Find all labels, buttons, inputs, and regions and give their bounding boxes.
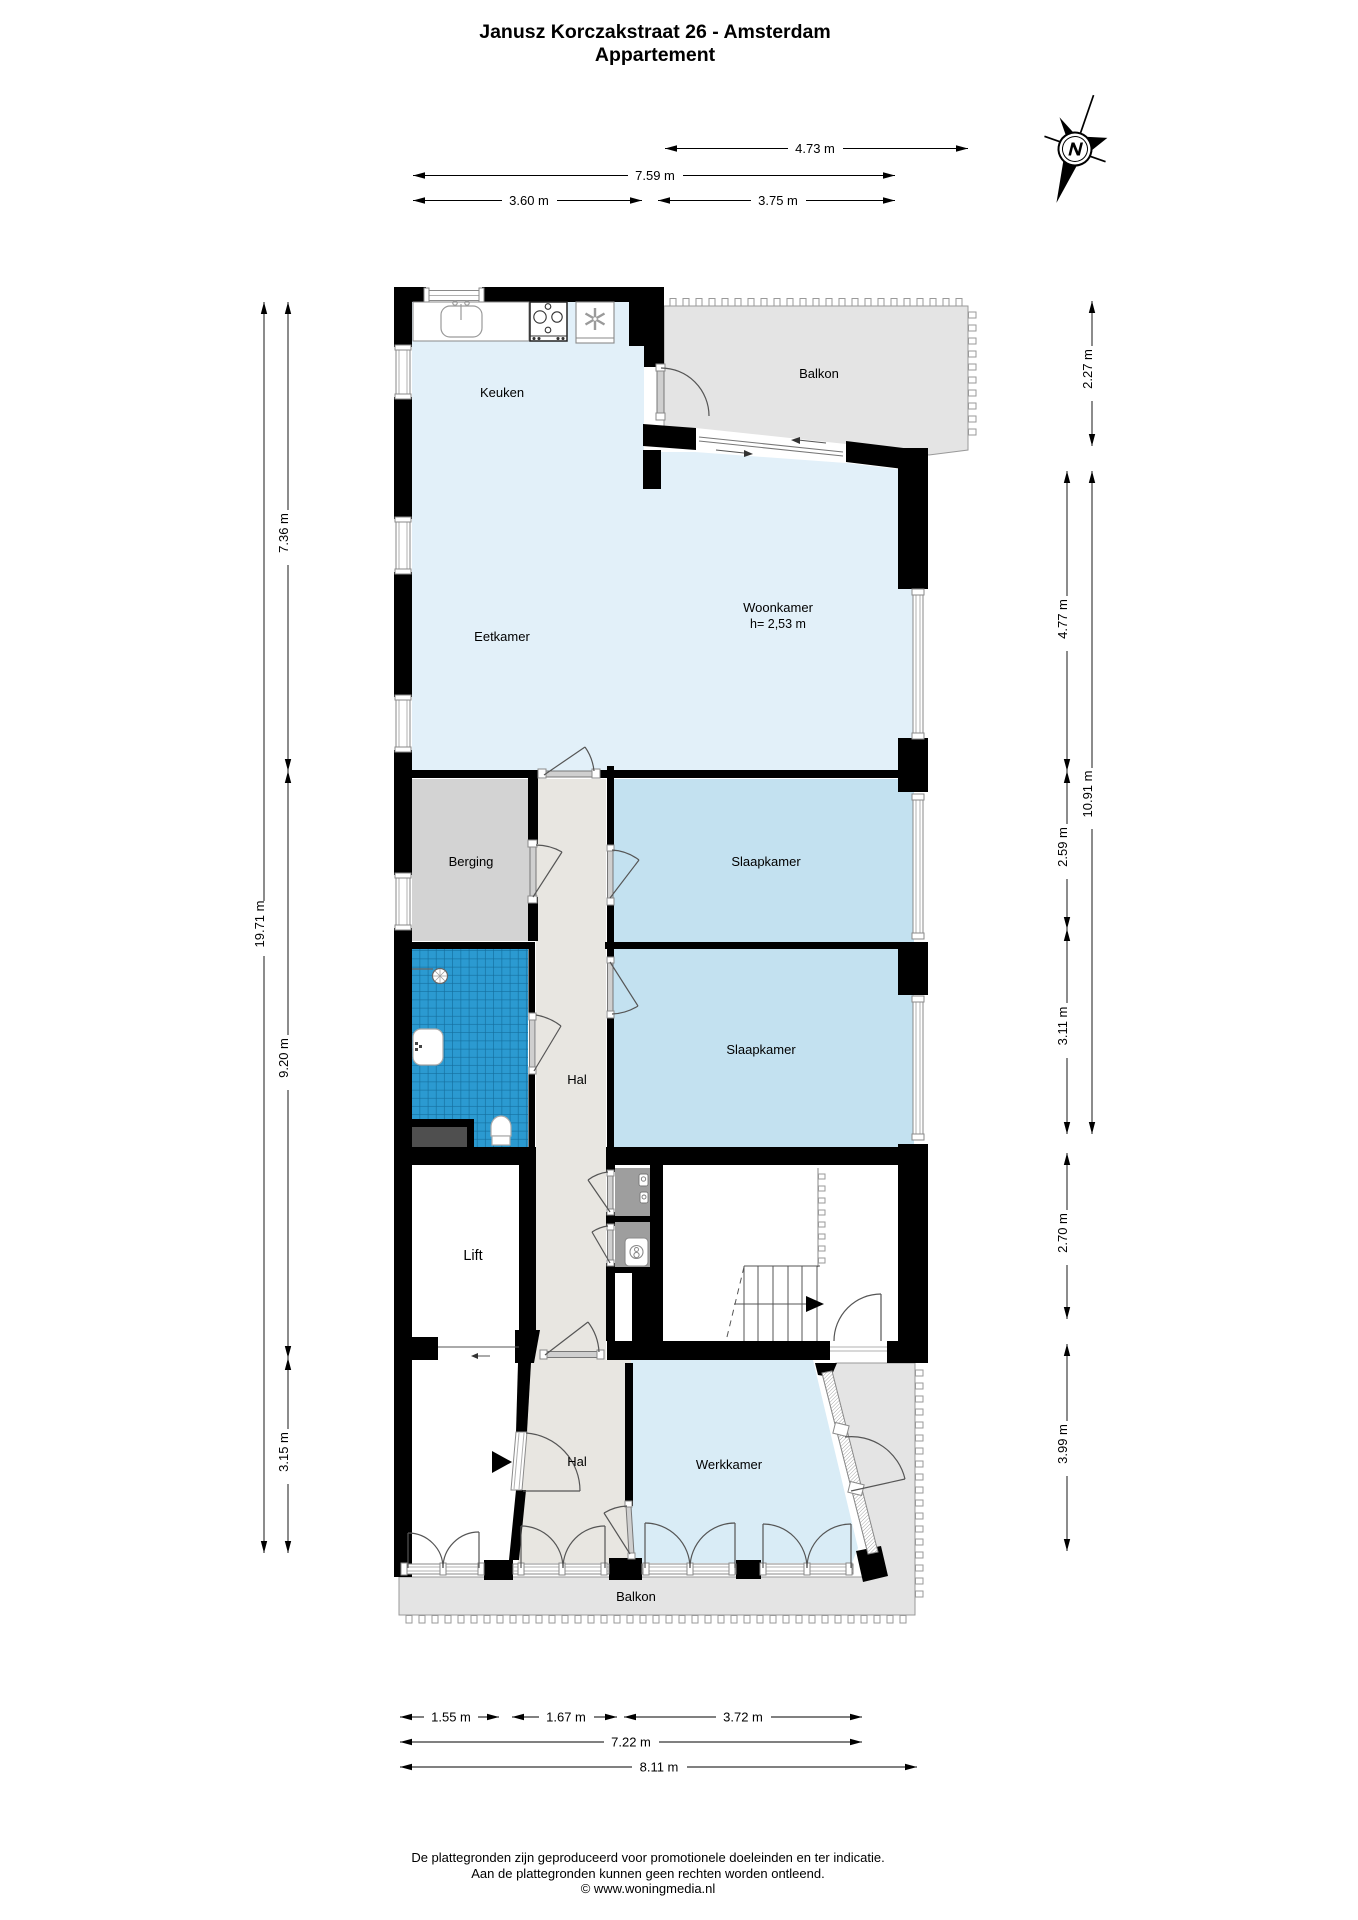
svg-text:Balkon: Balkon: [616, 1589, 656, 1604]
svg-text:4.73 m: 4.73 m: [795, 141, 835, 156]
svg-text:2.70 m: 2.70 m: [1055, 1213, 1070, 1253]
svg-text:Werkkamer: Werkkamer: [696, 1457, 763, 1472]
svg-text:© www.woningmedia.nl: © www.woningmedia.nl: [581, 1881, 716, 1896]
svg-text:3.72 m: 3.72 m: [723, 1710, 763, 1725]
svg-text:Woonkamer: Woonkamer: [743, 600, 814, 615]
svg-text:4.77 m: 4.77 m: [1055, 599, 1070, 639]
svg-text:3.99 m: 3.99 m: [1055, 1424, 1070, 1464]
svg-text:7.22 m: 7.22 m: [611, 1735, 651, 1750]
svg-text:2.27 m: 2.27 m: [1080, 349, 1095, 389]
svg-text:9.20 m: 9.20 m: [276, 1038, 291, 1078]
svg-text:Slaapkamer: Slaapkamer: [731, 854, 801, 869]
svg-text:Eetkamer: Eetkamer: [474, 629, 530, 644]
svg-text:Appartement: Appartement: [595, 44, 716, 66]
svg-text:7.59 m: 7.59 m: [635, 168, 675, 183]
svg-text:3.15 m: 3.15 m: [276, 1432, 291, 1472]
svg-text:3.60 m: 3.60 m: [509, 193, 549, 208]
svg-text:3.75 m: 3.75 m: [758, 193, 798, 208]
svg-text:h= 2,53 m: h= 2,53 m: [750, 617, 806, 631]
svg-text:Keuken: Keuken: [480, 385, 524, 400]
svg-text:Aan de plattegronden kunnen ge: Aan de plattegronden kunnen geen rechten…: [471, 1866, 824, 1881]
svg-text:10.91 m: 10.91 m: [1080, 771, 1095, 818]
svg-text:De plattegronden zijn geproduc: De plattegronden zijn geproduceerd voor …: [411, 1850, 884, 1865]
svg-text:Balkon: Balkon: [799, 366, 839, 381]
svg-text:1.55 m: 1.55 m: [431, 1710, 471, 1725]
svg-text:Lift: Lift: [463, 1248, 482, 1264]
svg-text:2.59 m: 2.59 m: [1055, 827, 1070, 867]
svg-text:Janusz Korczakstraat 26 - Amst: Janusz Korczakstraat 26 - Amsterdam: [479, 21, 831, 43]
svg-text:Hal: Hal: [567, 1454, 587, 1469]
svg-text:Hal: Hal: [567, 1072, 587, 1087]
svg-text:1.67 m: 1.67 m: [546, 1710, 586, 1725]
svg-text:Berging: Berging: [449, 854, 494, 869]
svg-text:7.36 m: 7.36 m: [276, 513, 291, 553]
svg-text:3.11 m: 3.11 m: [1055, 1007, 1070, 1046]
svg-text:8.11 m: 8.11 m: [640, 1760, 679, 1775]
svg-text:19.71 m: 19.71 m: [252, 901, 267, 948]
svg-text:Slaapkamer: Slaapkamer: [726, 1042, 796, 1057]
